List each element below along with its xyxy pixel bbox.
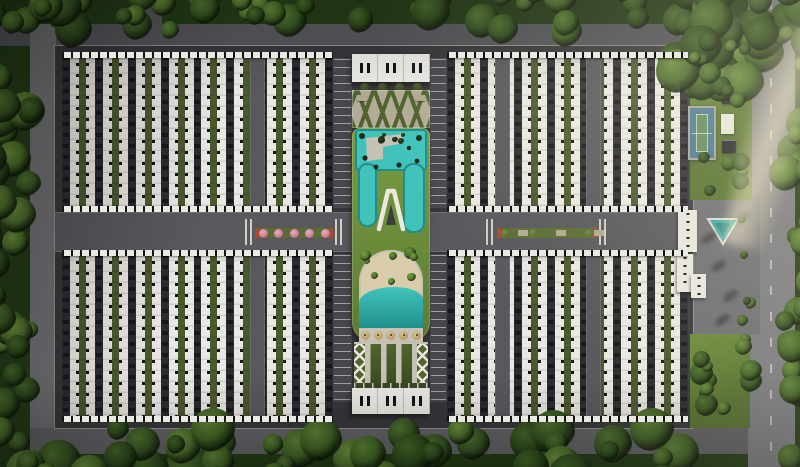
flowering-tree — [290, 229, 299, 238]
tree — [18, 452, 39, 467]
tree — [516, 0, 534, 12]
door-mark — [360, 396, 363, 406]
housing-block-left-bottom — [62, 250, 333, 422]
tree — [0, 1, 6, 22]
rear-alley — [613, 250, 621, 422]
rear-alley — [95, 52, 103, 212]
park-cabin — [722, 140, 736, 153]
tree — [410, 1, 427, 18]
tree — [419, 0, 452, 14]
townhouse-row-roof — [638, 52, 647, 212]
townhouse-row-roof — [217, 250, 226, 422]
door-mark — [367, 396, 370, 406]
pool-umbrella — [399, 331, 408, 340]
internal-street — [586, 250, 601, 422]
rear-alley — [161, 52, 169, 212]
door-mark — [412, 63, 415, 73]
tree — [544, 0, 577, 14]
backyard-strip — [79, 250, 86, 422]
park-lawn-south — [690, 334, 750, 428]
townhouse-row-roof — [655, 250, 664, 422]
townhouse-row-roof — [169, 250, 178, 422]
rear-alley — [547, 250, 555, 422]
parking-lane — [430, 254, 447, 402]
townhouse-row-roof — [234, 52, 243, 212]
door-mark — [393, 63, 396, 73]
backyard-strip — [210, 250, 217, 422]
townhouse-row-roof — [571, 250, 580, 422]
townhouse-row-roof — [201, 52, 210, 212]
parking-lane — [333, 58, 352, 208]
planter-box — [594, 230, 604, 236]
townhouse-row-roof — [152, 250, 161, 422]
tree — [362, 461, 404, 467]
tree — [0, 421, 4, 437]
letter-a-counter — [386, 204, 396, 225]
perimeter-road-top — [0, 24, 750, 46]
backyard-strip — [210, 52, 217, 212]
rear-alley — [226, 250, 234, 422]
tree — [0, 89, 21, 123]
parking-lane — [430, 58, 447, 208]
townhouse-row-roof — [283, 250, 292, 422]
planter-box — [556, 230, 566, 236]
court-surface — [690, 108, 714, 158]
townhouse-row-roof — [103, 250, 112, 422]
townhouse-row-roof — [267, 52, 276, 212]
tree — [0, 311, 29, 349]
townhouse-row-roof — [455, 52, 464, 212]
tree — [250, 0, 270, 14]
rear-alley — [194, 52, 202, 212]
door-mark — [393, 396, 396, 406]
rear-alley — [547, 52, 555, 212]
tree — [189, 0, 213, 11]
rear-alley — [447, 250, 455, 422]
townhouse-row-roof — [169, 52, 178, 212]
tree — [8, 432, 30, 454]
backyard-strip — [631, 250, 638, 422]
sports-court — [688, 106, 716, 160]
flowering-tree — [321, 229, 330, 238]
backyard-strip — [112, 52, 119, 212]
tree — [613, 0, 635, 2]
internal-street — [495, 250, 510, 422]
pool-umbrella — [386, 331, 395, 340]
backyard-strip — [531, 250, 538, 422]
tree — [246, 6, 266, 26]
tree — [29, 0, 63, 23]
tree — [69, 0, 92, 14]
townhouse-row-roof — [555, 52, 564, 212]
backyard-strip — [309, 52, 316, 212]
backyard-strip — [464, 52, 471, 212]
internal-street — [250, 52, 265, 212]
townhouse-row-roof — [86, 52, 95, 212]
rear-alley — [325, 250, 333, 422]
townhouse-row-roof — [119, 52, 128, 212]
perimeter-road-bottom — [30, 428, 750, 454]
entry-door-pair — [386, 396, 396, 406]
door-mark — [367, 63, 370, 73]
aerial-render-scene — [0, 0, 800, 467]
pool-umbrella — [412, 331, 421, 340]
amenity-spine — [352, 52, 430, 418]
median-shrub — [585, 229, 593, 237]
boulevard-median — [255, 228, 333, 238]
tree — [0, 207, 16, 225]
townhouse-row-roof — [621, 52, 630, 212]
tree — [0, 185, 17, 222]
townhouse-row-roof — [70, 250, 79, 422]
tree — [276, 455, 295, 467]
door-units-north — [352, 63, 430, 73]
tree — [0, 117, 18, 145]
backyard-strip — [664, 250, 671, 422]
door-mark — [419, 396, 422, 406]
rear-alley — [647, 52, 655, 212]
tree — [0, 141, 31, 177]
townhouse-row-roof — [671, 52, 680, 212]
tree — [0, 318, 21, 344]
tree — [261, 1, 286, 26]
backyard-strip — [276, 250, 283, 422]
townhouse-row-roof — [185, 250, 194, 422]
door-mark — [386, 396, 389, 406]
townhouse-row-roof — [604, 52, 613, 212]
tree — [0, 417, 15, 447]
townhouse-row-roof — [522, 250, 531, 422]
tree — [0, 140, 7, 178]
pool-umbrella — [361, 331, 370, 340]
backyard-strip — [309, 250, 316, 422]
rear-alley — [447, 52, 455, 212]
pergola — [357, 95, 367, 101]
rear-alley — [480, 52, 488, 212]
backyard-strip — [79, 52, 86, 212]
rear-alley — [647, 250, 655, 422]
tree — [693, 0, 735, 16]
entry-door-pair — [412, 63, 422, 73]
median-shrub — [529, 229, 537, 237]
townhouse-row-roof — [655, 52, 664, 212]
rear-alley — [292, 250, 300, 422]
park-pavilion — [721, 114, 734, 134]
tree — [3, 363, 26, 386]
tree — [27, 0, 51, 24]
townhouse-row-roof — [522, 52, 531, 212]
housing-block-right-bottom — [447, 250, 688, 422]
tree — [206, 0, 234, 1]
entry-door-pair — [412, 396, 422, 406]
boulevard-median — [497, 228, 597, 238]
tree — [0, 98, 21, 138]
townhouse-row-roof — [538, 52, 547, 212]
backyard-strip — [531, 52, 538, 212]
tree — [232, 0, 252, 11]
parking-lane — [333, 254, 352, 402]
backyard-strip — [178, 52, 185, 212]
perimeter-road-left — [30, 24, 56, 454]
rear-alley — [292, 52, 300, 212]
tree — [0, 303, 16, 335]
tree — [70, 455, 108, 467]
pergola — [415, 95, 425, 101]
tree — [0, 388, 20, 420]
townhouse-row-roof — [234, 250, 243, 422]
planter-end-cap — [329, 228, 333, 238]
backyard-strip — [464, 250, 471, 422]
rear-alley — [128, 250, 136, 422]
tree — [0, 64, 12, 92]
a-shaped-pool — [352, 128, 430, 242]
tree — [0, 153, 10, 192]
tree — [0, 282, 6, 310]
rear-alley — [194, 250, 202, 422]
tree — [190, 0, 220, 24]
internal-street — [495, 52, 510, 212]
rear-alley — [226, 52, 234, 212]
flowering-tree — [259, 229, 268, 238]
rear-alley — [613, 52, 621, 212]
backyard-strip — [145, 250, 152, 422]
rear-alley — [514, 52, 522, 212]
backyard-strip — [145, 52, 152, 212]
internal-street — [586, 52, 601, 212]
tree — [1, 317, 32, 348]
tree — [692, 0, 719, 21]
rear-alley — [161, 250, 169, 422]
townhouse-row-roof — [316, 250, 325, 422]
tree — [623, 0, 648, 15]
flowering-tree — [274, 229, 283, 238]
townhouse-row-roof — [201, 250, 210, 422]
townhouse-row-roof — [70, 52, 79, 212]
rear-alley — [514, 250, 522, 422]
townhouse-row-roof — [638, 250, 647, 422]
townhouse-row-roof — [604, 250, 613, 422]
townhouse-row-roof — [119, 250, 128, 422]
backyard-strip — [564, 250, 571, 422]
pool-umbrella — [374, 331, 383, 340]
exit-road-top — [132, 0, 162, 26]
townhouse-row-roof — [283, 52, 292, 212]
gatehouse — [691, 274, 706, 298]
townhouse-row-roof — [267, 250, 276, 422]
townhouse-row-roof — [185, 52, 194, 212]
flowering-tree — [305, 229, 314, 238]
housing-block-right-top — [447, 52, 688, 212]
backyard-strip — [112, 250, 119, 422]
rear-alley — [62, 52, 70, 212]
townhouse-row-roof — [316, 52, 325, 212]
townhouse-row-roof — [103, 52, 112, 212]
garden-plaza — [352, 90, 430, 128]
door-mark — [386, 63, 389, 73]
door-mark — [412, 396, 415, 406]
townhouse-row-roof — [455, 250, 464, 422]
townhouse-row-roof — [571, 52, 580, 212]
townhouse-row-roof — [86, 250, 95, 422]
tree — [116, 8, 132, 24]
townhouse-row-roof — [621, 250, 630, 422]
rear-alley — [62, 250, 70, 422]
rear-alley — [95, 250, 103, 422]
tree — [36, 463, 56, 467]
townhouse-row-roof — [555, 250, 564, 422]
clubhouse-south — [352, 388, 430, 414]
tree — [33, 0, 52, 17]
backyard-strip — [664, 52, 671, 212]
rear-alley — [128, 52, 136, 212]
door-units-south — [352, 396, 430, 406]
tree — [6, 335, 30, 359]
pool-deck-loungers — [359, 328, 423, 342]
tree — [0, 285, 5, 324]
tree — [690, 0, 718, 6]
gatehouse — [678, 210, 697, 252]
townhouse-row-roof — [300, 52, 309, 212]
internal-street — [250, 250, 265, 422]
rear-alley — [680, 52, 688, 212]
rear-alley — [480, 250, 488, 422]
townhouse-row-roof — [136, 250, 145, 422]
tree — [796, 266, 800, 297]
park-cabin — [722, 92, 736, 104]
tree — [239, 4, 257, 22]
entry-door-pair — [360, 63, 370, 73]
backyard-strip — [564, 52, 571, 212]
court-center-line — [692, 133, 712, 134]
tree — [491, 0, 512, 6]
tree — [296, 0, 314, 15]
backyard-strip — [276, 52, 283, 212]
door-mark — [360, 63, 363, 73]
tree — [0, 248, 10, 279]
townhouse-row-roof — [136, 52, 145, 212]
townhouse-row-roof — [152, 52, 161, 212]
door-mark — [419, 63, 422, 73]
townhouse-row-roof — [471, 52, 480, 212]
backyard-strip — [631, 52, 638, 212]
townhouse-row-roof — [538, 250, 547, 422]
rear-alley — [325, 52, 333, 212]
lagoon-pool-arch — [359, 250, 423, 334]
planter-box — [518, 230, 528, 236]
median-shrub — [501, 229, 509, 237]
entry-door-pair — [386, 63, 396, 73]
townhouse-row-roof — [300, 250, 309, 422]
clubhouse-north — [352, 54, 430, 82]
tree — [506, 0, 538, 1]
tree — [670, 0, 711, 10]
tree — [548, 454, 594, 467]
entry-door-pair — [360, 396, 370, 406]
townhouse-row-roof — [217, 52, 226, 212]
tree — [0, 337, 11, 354]
backyard-strip — [178, 250, 185, 422]
tree — [523, 0, 549, 3]
lagoon-water — [359, 287, 423, 334]
housing-block-left-top — [62, 52, 333, 212]
townhouse-row-roof — [471, 250, 480, 422]
tree — [263, 463, 285, 467]
